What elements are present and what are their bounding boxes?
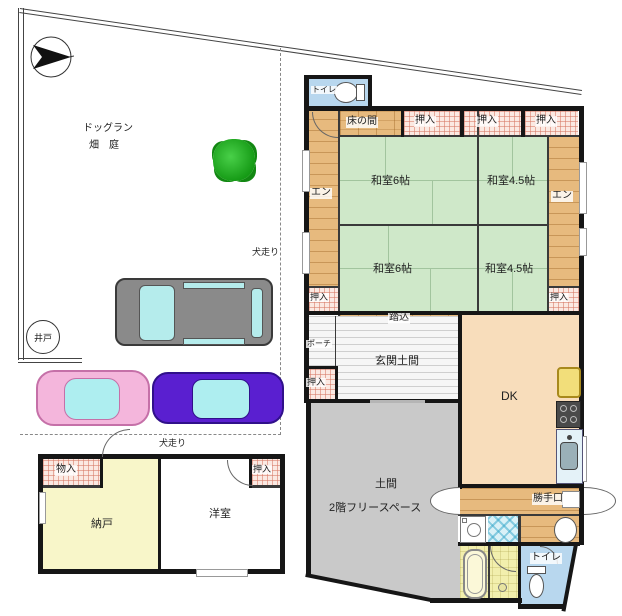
label-free-space: 2階フリースペース [328,503,422,515]
label-fumikomi: 踏込 [388,313,410,324]
wall [280,454,285,574]
label-oshiire-yoshitsu: 押入 [252,465,272,474]
label-katteguchi: 勝手口 [532,494,564,505]
car-purple [152,372,284,424]
wall [43,485,103,488]
room-washroom [488,515,520,545]
tree-icon [213,139,255,181]
wall [458,313,462,489]
label-oshiire-genkan: 押入 [306,378,326,387]
label-oshiire-bottom-left: 押入 [309,293,329,302]
wall [306,403,311,577]
wall [335,366,338,402]
compass-icon [28,34,74,85]
label-tokonoma: 床の間 [346,117,378,128]
label-engawa-right: エン [551,191,573,202]
window [579,162,587,214]
wall [158,459,161,571]
label-dk: DK [500,390,519,403]
wall [518,545,521,607]
van-windshield [139,285,175,341]
tatami-line [430,269,431,311]
wall [477,111,479,313]
label-engawa-left: エン [310,188,332,199]
label-washitsu6-lower: 和室6帖 [372,264,413,276]
label-doma: 土間 [374,479,398,491]
room-engawa-left [309,108,338,313]
label-toilet-top: トイレ [311,86,337,94]
car-pink [36,370,150,426]
wall [335,316,336,368]
wall [548,286,579,288]
fridge-icon [557,367,581,398]
garden-label-dogrun: ドッグラン [82,124,134,135]
wall [100,459,103,488]
purple-car-cabin [192,379,250,419]
label-oshiire-top3: 押入 [535,116,557,127]
van-side-window [183,282,245,289]
wall [304,311,584,315]
kitchen-sink-icon [556,429,583,484]
wall [458,484,584,488]
washbasin-icon [554,517,577,543]
wall [304,75,372,79]
wall [521,106,525,137]
wall [249,485,281,488]
wall [401,111,404,137]
toilet-icon-top [334,82,358,103]
tatami-line [388,226,389,268]
washing-machine-pan [460,516,486,543]
van-side-window-b [183,338,245,345]
label-washitsu45-upper: 和室4.5帖 [486,176,536,188]
site-boundary-bottom-left [18,358,82,363]
wall [38,454,285,459]
doormat-katteguchi [562,491,580,508]
label-oshiire-top2: 押入 [476,116,498,127]
garden-label-field: 畑 庭 [88,141,120,152]
label-porch: ポーチ [306,340,332,348]
wall [520,514,584,516]
wall [518,604,566,609]
tatami-line [512,137,513,180]
window [196,569,248,577]
door-arc-katteguchi-right [584,487,616,515]
bathtub-icon [463,549,487,599]
wall [340,224,548,226]
stove-icon [556,401,581,428]
window [579,228,587,256]
label-toilet-bottom: トイレ [530,553,562,564]
toilet-tank-top [356,84,365,101]
wall [460,106,464,137]
label-oshiire-bottom-right: 押入 [549,293,569,302]
sliding-door [370,400,425,403]
floor-plan: ドッグラン 畑 庭 井戸 犬走り 犬走り [0,0,622,616]
pink-car-cabin [64,378,120,420]
wall [488,545,490,600]
well-marker: 井戸 [26,320,60,354]
inubashiri-label-top: 犬走り [251,248,280,257]
toilet-icon-bottom [527,566,546,574]
window [302,232,310,274]
label-yoshitsu: 洋室 [208,509,232,521]
window [302,150,310,192]
site-boundary-top [19,8,582,95]
label-washitsu45-lower: 和室4.5帖 [484,264,534,276]
site-boundary-left [18,8,24,360]
label-oshiire-top1: 押入 [414,116,436,127]
wall [304,106,584,111]
label-genkan-doma: 玄関土間 [374,356,420,368]
tatami-line [432,181,433,224]
toilet-bowl-bottom [529,574,544,598]
wall [518,515,521,544]
label-mono-ire: 物入 [55,465,77,476]
car-gray-van [115,278,273,346]
room-tatami-block [338,111,548,313]
wall [309,286,338,288]
wall [338,111,340,316]
well-label: 井戸 [33,333,53,343]
tatami-line [385,137,386,180]
inubashiri-label-bottom: 犬走り [158,439,187,448]
label-washitsu6-upper: 和室6帖 [370,176,411,188]
van-rear-window [251,288,263,338]
dashed-line-horizontal [20,434,281,435]
bath-drain-icon [498,583,507,592]
window [39,492,46,524]
wall [305,366,338,369]
label-nando: 納戸 [90,519,114,531]
